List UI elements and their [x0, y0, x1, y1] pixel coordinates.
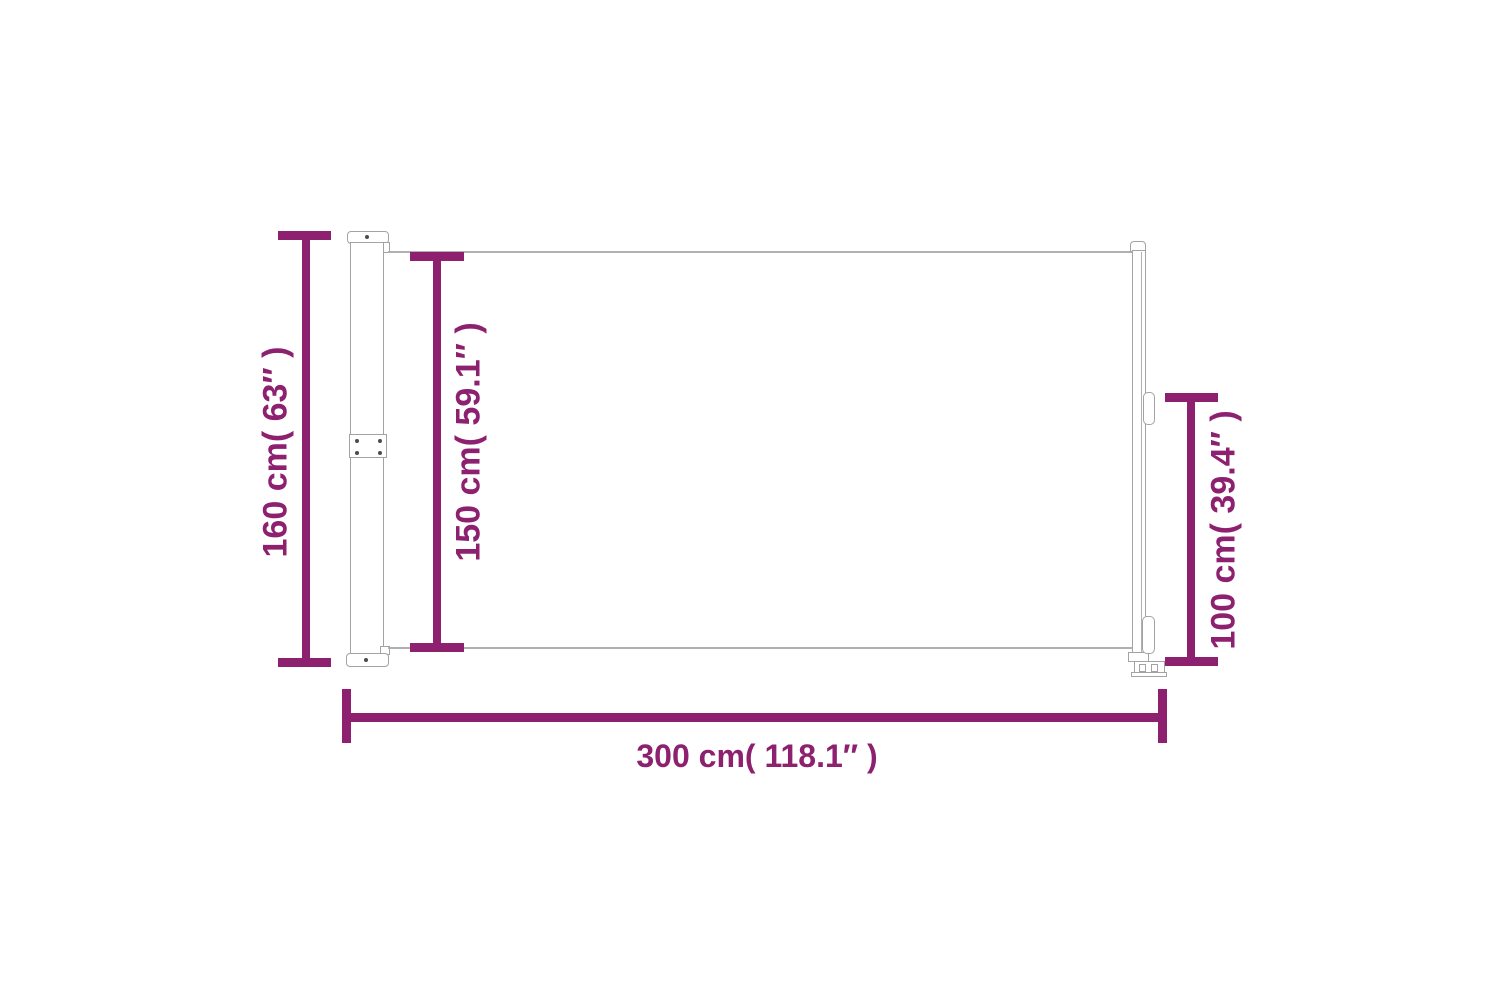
post-foot-slot [1139, 664, 1146, 672]
screw-dot [355, 439, 359, 443]
dim-label-screen-height: 150 cm( 59.1″ ) [450, 322, 489, 561]
post-foot-slot [1151, 664, 1158, 672]
dimension-diagram: 160 cm( 63″ ) 150 cm( 59.1″ ) 100 cm( 39… [0, 0, 1500, 1000]
post-handle-upper [1143, 392, 1155, 425]
screw-dot [364, 658, 368, 662]
dim-cap-right [1158, 689, 1167, 743]
dim-cap-bottom [1165, 657, 1218, 666]
post-handle-lower [1142, 616, 1155, 654]
dim-line [342, 713, 1167, 722]
dim-cap-bottom [278, 658, 331, 667]
screw-dot [378, 439, 382, 443]
dim-line [433, 252, 441, 652]
screw-dot [365, 235, 369, 239]
screw-dot [378, 451, 382, 455]
dim-label-total-height: 160 cm( 63″ ) [257, 347, 296, 558]
screen-bottom-edge [388, 647, 1134, 649]
screen-top-edge [388, 251, 1134, 253]
dim-label-total-width: 300 cm( 118.1″ ) [636, 738, 877, 775]
post-profile-line [1141, 252, 1142, 654]
dim-line [302, 231, 310, 667]
screw-dot [355, 451, 359, 455]
dim-cap-bottom [410, 643, 464, 652]
post-foot-base [1131, 672, 1167, 677]
post-body [1132, 250, 1146, 656]
dim-line [1187, 393, 1195, 666]
dim-label-pull-bar-height: 100 cm( 39.4″ ) [1205, 410, 1244, 649]
